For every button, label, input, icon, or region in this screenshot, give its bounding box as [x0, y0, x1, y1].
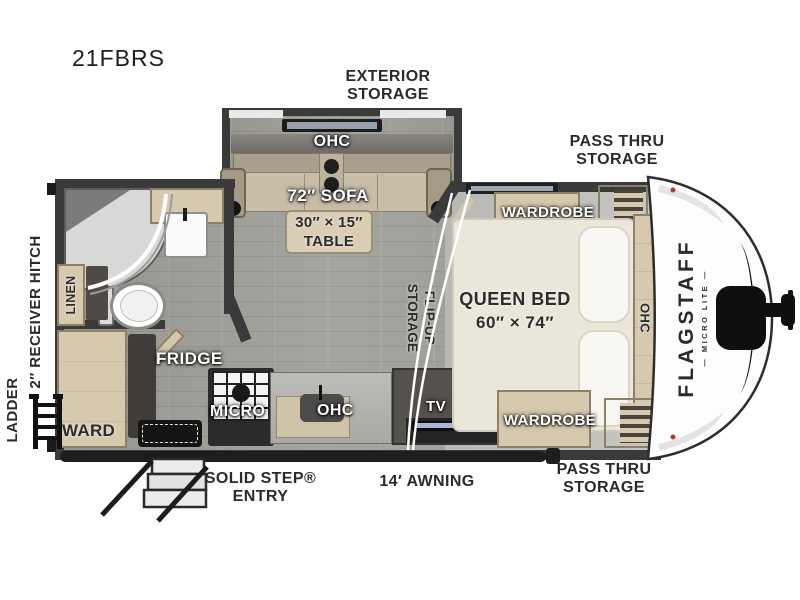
exterior-storage-label: EXTERIOR STORAGE — [308, 68, 468, 104]
brand-series-text: MICRO LITE — [700, 284, 709, 352]
pass-thru-bottom-line2: STORAGE — [524, 479, 684, 497]
jack-handle — [788, 290, 793, 330]
model-label: 21FBRS — [72, 45, 165, 72]
brand-dash: — — [700, 269, 709, 284]
brand-series: — MICRO LITE — — [700, 238, 709, 397]
solid-step-line2: ENTRY — [178, 488, 343, 506]
receiver-hitch-label: 2″ RECEIVER HITCH — [27, 235, 45, 388]
solid-step-entry-label: SOLID STEP® ENTRY — [178, 470, 343, 506]
awning-bar — [60, 451, 546, 462]
shower-glass — [88, 194, 166, 288]
brand-name: FLAGSTAFF — [675, 238, 699, 397]
pass-thru-bottom-label: PASS THRU STORAGE — [524, 461, 684, 497]
awning-label: 14′ AWNING — [352, 473, 502, 491]
pass-thru-top-line2: STORAGE — [537, 151, 697, 169]
marker-light-icon — [671, 188, 676, 193]
pass-thru-bottom-line1: PASS THRU — [524, 461, 684, 479]
exterior-storage-line1: EXTERIOR — [308, 68, 468, 86]
ladder-icon — [29, 394, 63, 449]
solid-step-line1: SOLID STEP® — [178, 470, 343, 488]
pass-thru-top-line1: PASS THRU — [537, 133, 697, 151]
flip-up-swing-line — [413, 190, 470, 450]
shower-glass-edge — [90, 194, 172, 294]
brand-decal: FLAGSTAFF — MICRO LITE — — [675, 238, 709, 397]
propane-cover — [716, 286, 766, 350]
pass-thru-top-label: PASS THRU STORAGE — [537, 133, 697, 169]
ladder-label: LADDER — [4, 378, 22, 443]
floorplan-canvas: OHC 72″ SOFA 30″ × 15″ TABLE LINEN — [0, 0, 800, 600]
brand-dash: — — [700, 352, 709, 367]
marker-light-icon — [671, 435, 676, 440]
flip-up-swing-line — [408, 193, 452, 450]
exterior-storage-line2: STORAGE — [308, 86, 468, 104]
